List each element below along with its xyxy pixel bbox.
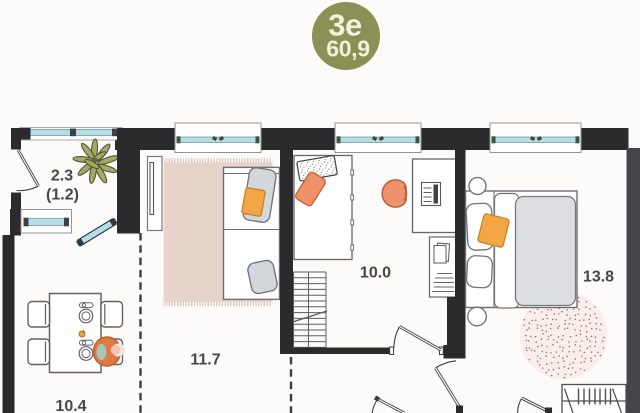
svg-text:10.0: 10.0 bbox=[360, 265, 391, 282]
svg-text:2.3: 2.3 bbox=[51, 168, 73, 185]
svg-text:11.7: 11.7 bbox=[190, 352, 220, 369]
svg-text:10.4: 10.4 bbox=[55, 398, 86, 413]
svg-text:60,9: 60,9 bbox=[326, 36, 370, 62]
svg-text:(1.2): (1.2) bbox=[46, 187, 79, 204]
svg-text:13.8: 13.8 bbox=[583, 269, 614, 286]
